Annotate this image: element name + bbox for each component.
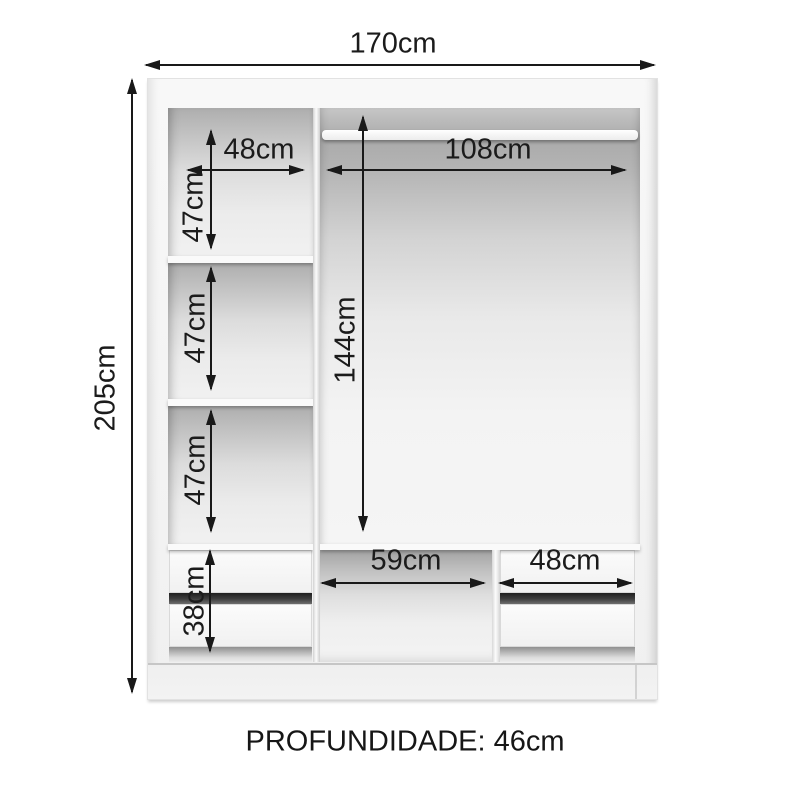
hanging-height-arrow (362, 117, 364, 530)
wardrobe-body (147, 78, 658, 700)
center-divider-panel (313, 108, 320, 662)
wardrobe-interior (168, 108, 640, 662)
base-panel (148, 663, 657, 699)
shelf-width-label: 48cm (224, 136, 295, 165)
overall-width-arrow (146, 64, 654, 66)
right-drawer-front-bottom (500, 604, 635, 647)
left-drawer-floor-shadow (169, 647, 312, 662)
compartment-2-height-label: 47cm (182, 293, 211, 364)
hanging-width-label: 108cm (444, 136, 531, 165)
compartment-3-height-label: 47cm (182, 435, 211, 506)
hanging-height-label: 144cm (332, 296, 361, 383)
overall-width-label: 170cm (349, 30, 436, 59)
hanging-area (320, 108, 640, 544)
right-drawer-width-arrow (500, 582, 631, 584)
overall-height-label: 205cm (92, 344, 121, 431)
shelf-divider-1 (168, 256, 313, 263)
right-drawer-floor-shadow (500, 647, 635, 662)
right-drawer-width-label: 48cm (530, 547, 601, 576)
compartment-1-height-label: 47cm (180, 172, 209, 243)
shelf-divider-2 (168, 399, 313, 406)
depth-label: PROFUNDIDADE: 46cm (245, 726, 564, 759)
overall-height-arrow (131, 80, 133, 692)
shelf-divider-3 (168, 544, 313, 550)
compartment-1-height-arrow (210, 131, 212, 248)
wardrobe-dimension-diagram: 170cm 205cm (0, 0, 800, 800)
niche-width-arrow (322, 582, 484, 584)
right-drawer-gap (500, 593, 635, 604)
niche-divider-panel (492, 550, 500, 662)
niche-width-label: 59cm (371, 547, 442, 576)
drawer-stack-height-label: 38cm (181, 566, 210, 637)
hanging-width-arrow (328, 169, 625, 171)
